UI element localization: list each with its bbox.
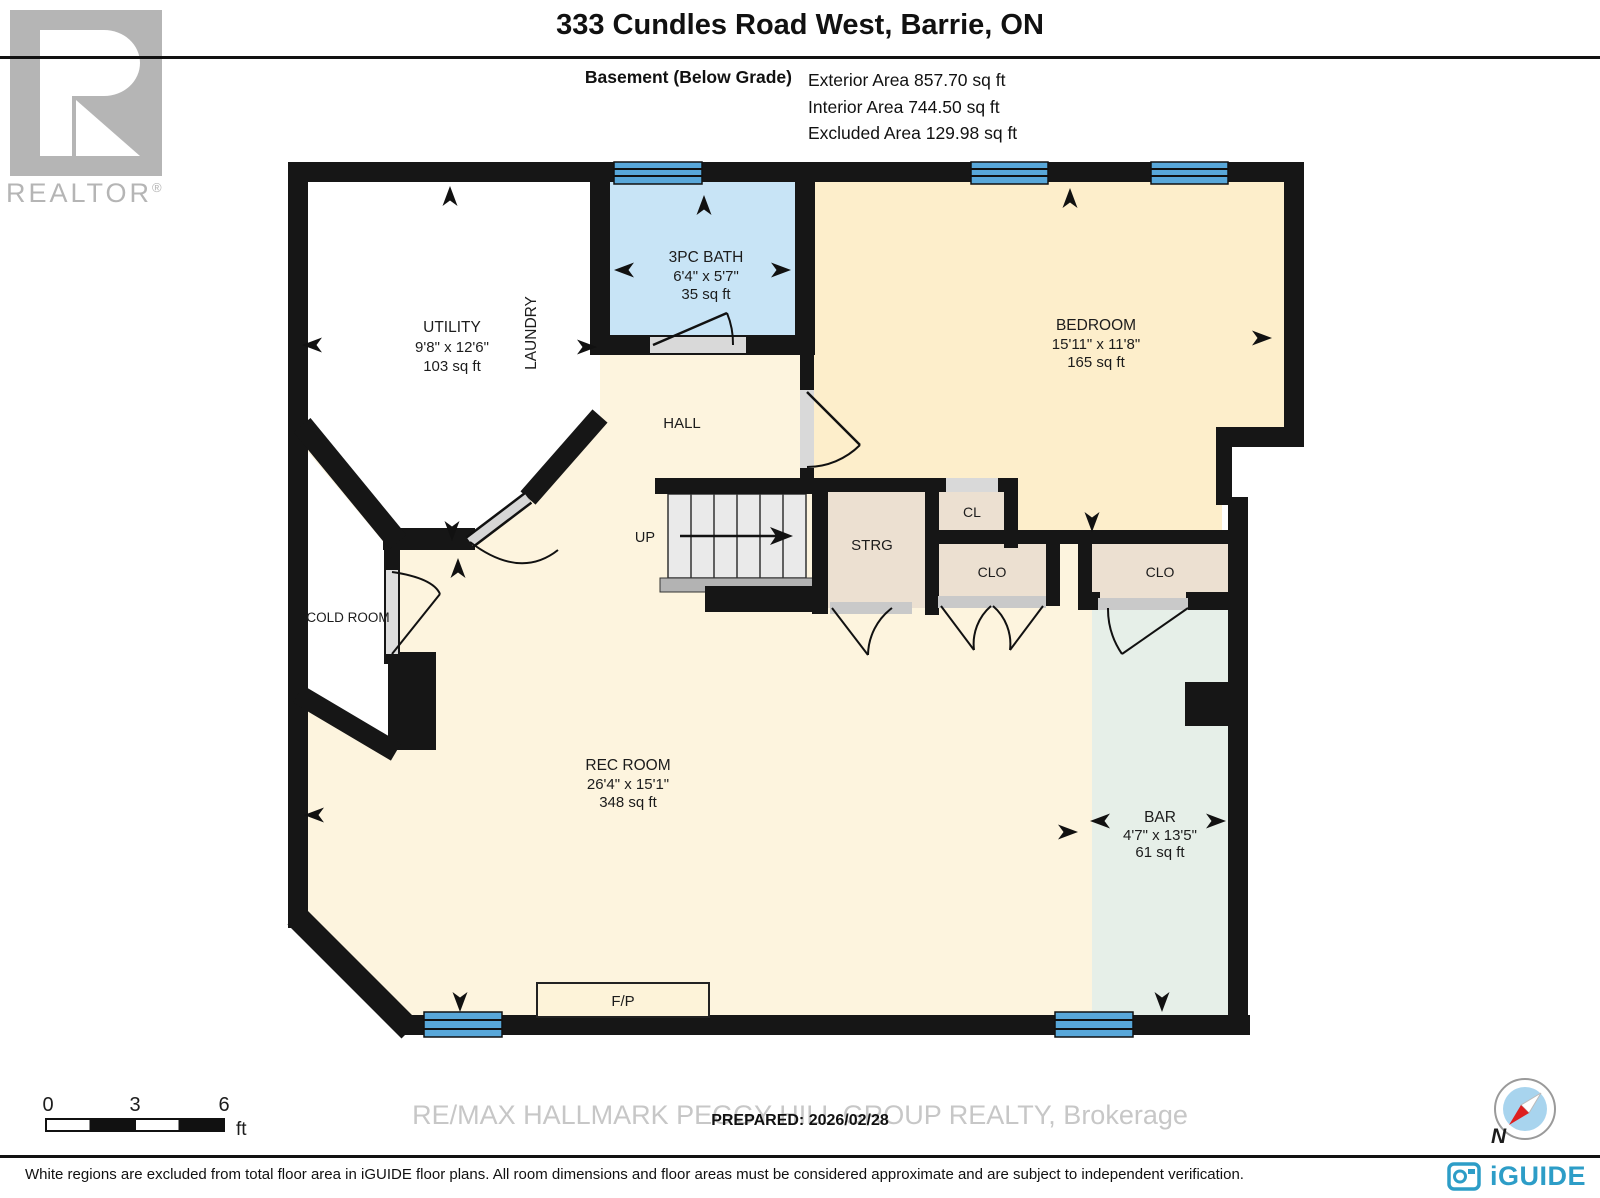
interior-area: Interior Area 744.50 sq ft (808, 94, 1017, 121)
bar-name: BAR (1144, 809, 1176, 826)
bath-dims: 6'4" x 5'7" (673, 268, 739, 285)
strg-name: STRG (851, 537, 893, 554)
compass-icon: N (1477, 1067, 1572, 1157)
window-bedroom-2 (1151, 162, 1228, 184)
realtor-logo-text: REALTOR® (6, 178, 165, 209)
utility-area: 103 sq ft (423, 358, 481, 375)
bar-dims: 4'7" x 13'5" (1123, 827, 1197, 844)
laundry-name: LAUNDRY (523, 296, 540, 370)
window-bath (614, 162, 702, 184)
rec-room-dims: 26'4" x 15'1" (587, 776, 669, 793)
staircase (660, 494, 816, 592)
utility-name: UTILITY (423, 319, 481, 336)
cold-room-name: COLD ROOM (306, 610, 389, 625)
window-rec (424, 1012, 502, 1037)
bedroom-dims: 15'11" x 11'8" (1052, 336, 1140, 353)
exterior-area: Exterior Area 857.70 sq ft (808, 67, 1017, 94)
bar-area: 61 sq ft (1135, 844, 1185, 861)
fireplace: F/P (537, 983, 709, 1017)
page-title: 333 Cundles Road West, Barrie, ON (0, 9, 1600, 42)
floor-label: Basement (Below Grade) (0, 67, 792, 88)
excluded-area: Excluded Area 129.98 sq ft (808, 120, 1017, 147)
bedroom-area: 165 sq ft (1067, 354, 1125, 371)
title-divider (0, 56, 1600, 59)
bath-name: 3PC BATH (669, 249, 744, 266)
cl-name: CL (963, 504, 981, 520)
window-bar (1055, 1012, 1133, 1037)
clo1-name: CLO (978, 564, 1007, 580)
compass-north-label: N (1491, 1125, 1507, 1148)
clo2-name: CLO (1146, 564, 1175, 580)
iguide-brand-text: iGUIDE (1490, 1161, 1586, 1192)
area-stats: Exterior Area 857.70 sq ft Interior Area… (808, 67, 1017, 147)
hall-name: HALL (663, 415, 701, 432)
rec-room-name: REC ROOM (585, 757, 670, 774)
disclaimer-text: White regions are excluded from total fl… (25, 1166, 1244, 1183)
footer-divider (0, 1155, 1600, 1158)
floor-plan: F/P UTILITY 9'8" x 12'6" 103 sq ft LAUND… (0, 0, 1600, 1198)
prepared-date: PREPARED: 2026/02/28 (0, 1112, 1600, 1130)
iguide-logo-icon (1446, 1160, 1484, 1192)
bedroom-name: BEDROOM (1056, 317, 1136, 334)
window-bedroom-1 (971, 162, 1048, 184)
utility-dims: 9'8" x 12'6" (415, 339, 489, 356)
bath-area: 35 sq ft (681, 286, 731, 303)
stairs-up-label: UP (635, 530, 655, 546)
fireplace-label: F/P (611, 993, 634, 1010)
iguide-logo: iGUIDE (1446, 1160, 1586, 1192)
rec-room-area: 348 sq ft (599, 794, 657, 811)
